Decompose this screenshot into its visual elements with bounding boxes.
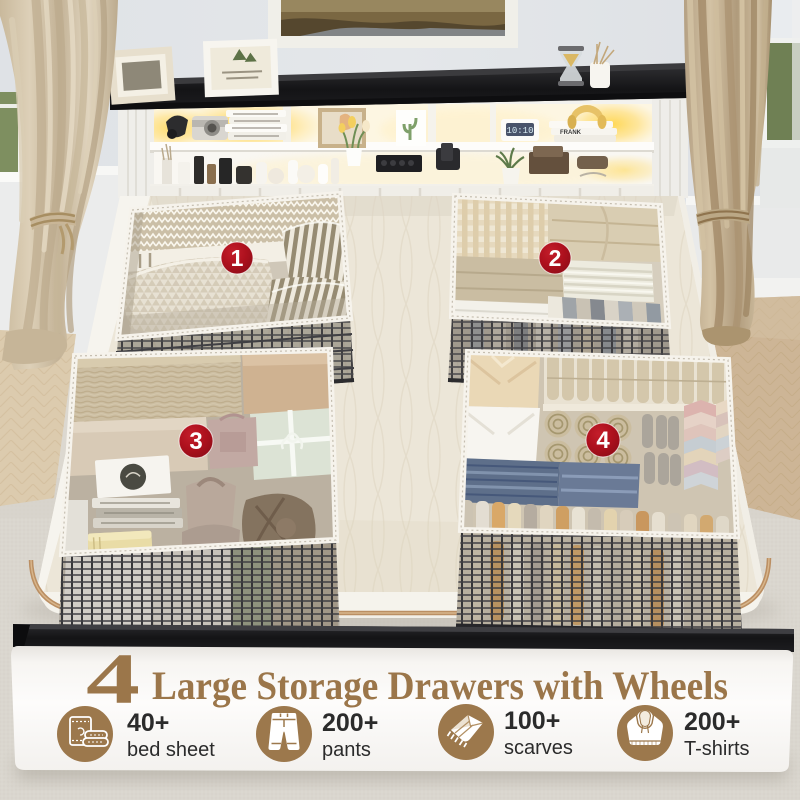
svg-text:4: 4 (86, 639, 140, 719)
svg-text:10:10: 10:10 (506, 126, 533, 136)
svg-text:3: 3 (189, 428, 202, 455)
svg-text:200+: 200+ (322, 709, 378, 737)
svg-text:scarves: scarves (504, 737, 573, 759)
svg-text:pants: pants (322, 739, 371, 761)
svg-text:2: 2 (549, 245, 562, 271)
svg-text:bed sheet: bed sheet (127, 739, 215, 761)
svg-text:1: 1 (231, 245, 244, 271)
svg-text:T-shirts: T-shirts (684, 738, 750, 760)
svg-text:100+: 100+ (504, 707, 560, 735)
svg-text:40+: 40+ (127, 709, 169, 737)
svg-text:FRANK: FRANK (560, 130, 582, 136)
svg-text:Large Storage Drawers with Whe: Large Storage Drawers with Wheels (152, 663, 728, 708)
svg-text:4: 4 (596, 427, 610, 454)
svg-text:200+: 200+ (684, 708, 740, 736)
